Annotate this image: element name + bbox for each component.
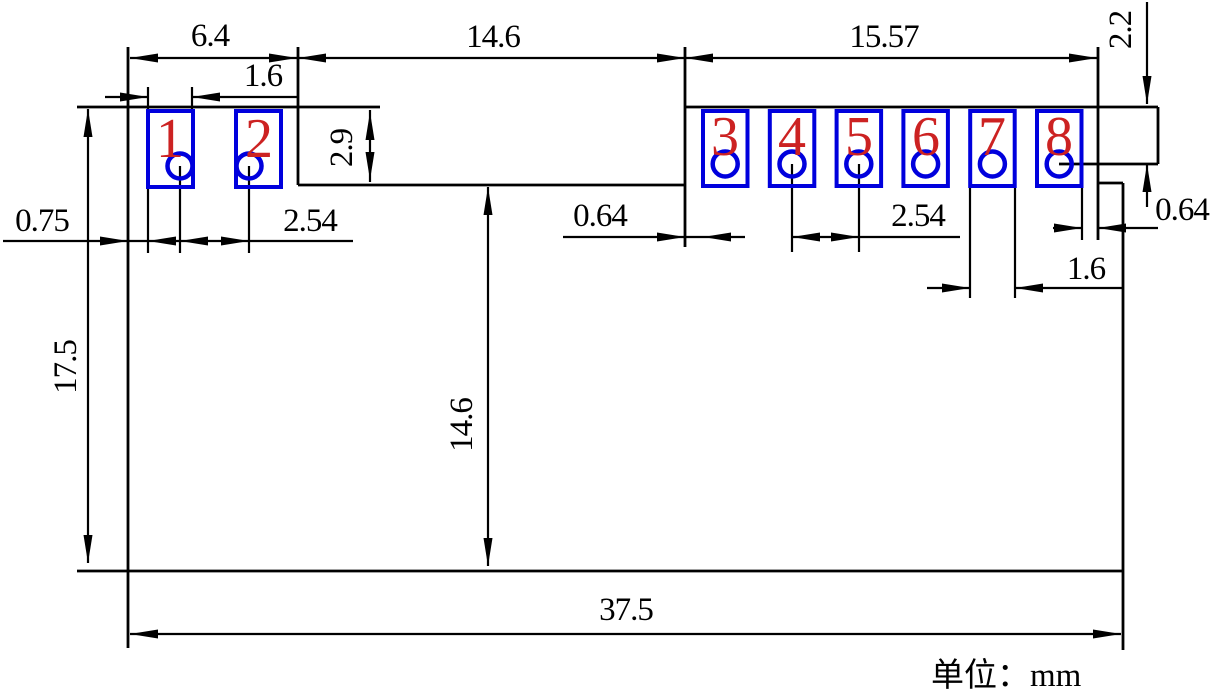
arrowhead <box>366 152 375 180</box>
arrowhead <box>100 237 128 246</box>
dim-notch-width: 14.6 <box>466 19 520 55</box>
dim-pad1-width: 1.6 <box>244 58 283 94</box>
arrowhead <box>180 237 208 246</box>
arrowhead <box>298 54 326 63</box>
arrowhead <box>792 233 820 242</box>
arrowhead <box>130 54 158 63</box>
arrowhead <box>192 93 220 102</box>
pad-1: 1 <box>148 108 193 187</box>
dim-edge-to-pad3: 0.64 <box>573 198 627 234</box>
pin-number-6: 6 <box>912 106 940 168</box>
dim-notch-depth: 14.6 <box>444 398 480 452</box>
arrowhead <box>685 54 713 63</box>
pin-number-8: 8 <box>1045 106 1073 168</box>
arrowhead <box>221 237 249 246</box>
arrowhead <box>657 233 685 242</box>
dim-top-edge-to-pin-line: 2.2 <box>1103 11 1139 49</box>
arrowhead <box>484 538 493 566</box>
dimension-drawing-page: 1 2 3 4 5 6 7 8 6.4 1.6 14.6 15.57 <box>0 0 1225 692</box>
dim-pad8-to-edge: 0.64 <box>1155 192 1209 228</box>
arrowhead <box>1098 224 1126 233</box>
arrowhead <box>1054 224 1082 233</box>
pin-number-1: 1 <box>156 108 184 170</box>
pin-number-2: 2 <box>245 108 273 170</box>
unit-note: 单位：mm <box>931 657 1082 692</box>
arrowhead <box>703 233 731 242</box>
dim-total-width: 37.5 <box>599 592 653 628</box>
arrowhead <box>657 54 685 63</box>
arrowhead <box>120 93 148 102</box>
dim-left-section-width: 6.4 <box>191 18 230 54</box>
pin-number-5: 5 <box>845 106 873 168</box>
dim-pad1-pad2-pitch: 2.54 <box>283 203 337 239</box>
pad-2: 2 <box>236 108 281 187</box>
arrowhead <box>831 233 859 242</box>
arrowhead <box>1093 630 1121 639</box>
dim-body-height: 17.5 <box>48 340 84 394</box>
arrowhead <box>366 112 375 140</box>
pad-3: 3 <box>703 106 748 186</box>
dim-pad-height: 2.9 <box>324 128 360 167</box>
dim-right-section-width: 15.57 <box>849 19 919 55</box>
arrowhead <box>1015 284 1043 293</box>
dim-left-edge-to-pad1: 0.75 <box>15 203 69 239</box>
arrowhead <box>942 284 970 293</box>
arrowhead <box>1143 164 1152 192</box>
pin-number-7: 7 <box>978 106 1006 168</box>
arrowhead <box>148 237 176 246</box>
pin-number-4: 4 <box>778 106 806 168</box>
pad-8: 8 <box>1037 106 1082 186</box>
arrowhead <box>484 187 493 215</box>
pad-7: 7 <box>970 106 1015 186</box>
arrowhead <box>130 630 158 639</box>
arrowhead <box>1143 76 1152 104</box>
arrowhead <box>84 109 93 137</box>
arrowhead <box>1069 54 1097 63</box>
dim-pad4-pad5-pitch: 2.54 <box>891 198 945 234</box>
arrowhead <box>84 535 93 563</box>
pad-6: 6 <box>903 106 948 186</box>
pin-number-3: 3 <box>711 106 739 168</box>
pcb-footprint-drawing: 1 2 3 4 5 6 7 8 6.4 1.6 14.6 15.57 <box>0 0 1225 692</box>
dim-pad7-width: 1.6 <box>1067 251 1106 287</box>
